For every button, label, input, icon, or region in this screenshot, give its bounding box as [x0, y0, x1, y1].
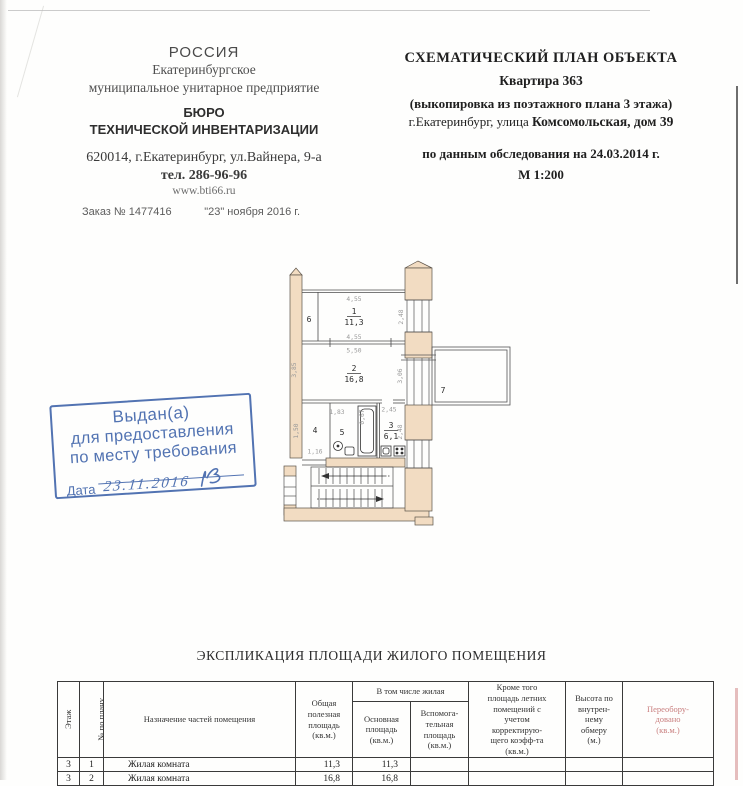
bottom-wall-step [415, 517, 433, 525]
apartment-line: Квартира 363 [376, 73, 706, 89]
cell-floor: 3 [58, 772, 80, 786]
title-block: СХЕМАТИЧЕСКИЙ ПЛАН ОБЪЕКТА Квартира 363 … [376, 50, 706, 183]
letterhead-bureau-line1: БЮРО [58, 105, 350, 122]
stair-wall-block [284, 466, 296, 476]
scan-right-line [736, 86, 738, 284]
order-number: Заказ № 1477416 [82, 206, 172, 218]
stamp-date-label: Дата [66, 482, 96, 499]
letterhead-org-line1: Екатеринбургское [58, 61, 350, 79]
dim-room5-top: 1,83 [329, 409, 344, 416]
scan-pink-line [735, 688, 738, 780]
letterhead-address: 620014, г.Екатеринбург, ул.Вайнера, 9-а [58, 150, 350, 166]
window-icon [405, 440, 432, 468]
cell-aux [411, 772, 469, 786]
cell-height [566, 758, 623, 772]
letterhead: РОССИЯ Екатеринбургское муниципальное ун… [58, 44, 350, 218]
staircase [311, 467, 393, 508]
scan-fold-mark [17, 6, 44, 98]
apartment-bottom-wall [326, 458, 405, 467]
dim-room2-right: 3,06 [397, 368, 404, 383]
stair-direction-arrow [317, 496, 384, 502]
cell-total: 11,3 [296, 758, 353, 772]
header-reequipped: Переобору- довано (кв.м.) [623, 682, 714, 758]
header-main-area: Основная площадь (кв.м.) [353, 702, 411, 758]
survey-line: по данным обследования на 24.03.2014 г. [376, 146, 706, 162]
header-summer-area: Кроме того площадь летних помещений с уч… [469, 682, 566, 758]
cell-no: 2 [80, 772, 104, 786]
stair-window-icon [284, 476, 296, 505]
table-row: 3 1 Жилая комната 11,3 11,3 [58, 758, 714, 772]
explication-table: Этаж № по плану Назначение частей помеще… [57, 681, 714, 786]
stair-direction-arrow [321, 473, 391, 479]
balcony-door-window-icon [401, 355, 436, 405]
header-aux-area: Вспомога- тельная площадь (кв.м.) [411, 702, 469, 758]
toilet-icon [345, 447, 354, 455]
room5-number: 5 [340, 428, 345, 437]
cell-main: 16,8 [353, 772, 411, 786]
order-date: "23" ноября 2016 г. [204, 206, 300, 218]
kitchen-sink-basin [383, 448, 389, 454]
floor-plan: 6 1 11,3 2 16,8 3 6,1 4 5 7 4,55 2,48 4,… [281, 259, 519, 527]
dim-room1-top: 4,55 [346, 296, 361, 303]
cell-purpose: Жилая комната [104, 758, 296, 772]
letterhead-website: www.bti66.ru [58, 185, 350, 197]
dim-room3-right: 2,48 [397, 424, 404, 439]
right-wall-block [405, 268, 432, 300]
dim-room1-right: 2,48 [398, 309, 405, 324]
header-purpose: Назначение частей помещения [104, 682, 296, 758]
extract-line: (выкопировка из поэтажного плана 3 этажа… [376, 96, 706, 112]
header-plan-no-text: № по плану [96, 698, 104, 741]
window-icon [405, 300, 432, 332]
order-row: Заказ № 1477416 "23" ноября 2016 г. [58, 206, 350, 218]
header-floor-text: Этаж [63, 710, 74, 729]
issued-stamp: Выдан(а) для предоставления по месту тре… [49, 393, 257, 499]
dim-room3-top: 2,45 [381, 407, 396, 414]
room3-number: 3 [389, 421, 394, 430]
right-wall-block [405, 332, 432, 358]
letterhead-country: РОССИЯ [58, 44, 350, 61]
address-line: г.Екатеринбург, улица Комсомольская, дом… [376, 114, 706, 130]
dim-room2-top: 5,50 [346, 348, 361, 355]
table-title: ЭКСПЛИКАЦИЯ ПЛОЩАДИ ЖИЛОГО ПОМЕЩЕНИЯ [0, 648, 743, 664]
right-wall-block [405, 405, 432, 440]
address-city: г.Екатеринбург, улица [409, 114, 532, 129]
room2-number: 2 [352, 364, 357, 373]
header-plan-no: № по плану [80, 682, 104, 758]
cell-no: 1 [80, 758, 104, 772]
room6-number: 6 [307, 315, 312, 324]
balcony [432, 347, 510, 405]
sink-drain [337, 445, 339, 447]
cell-floor: 3 [58, 758, 80, 772]
room1-area: 11,3 [344, 318, 363, 327]
dim-room4-bottom: 1,16 [307, 449, 322, 456]
cell-summer [469, 758, 566, 772]
cell-height [566, 772, 623, 786]
cell-total: 16,8 [296, 772, 353, 786]
wall-break-icon [405, 261, 432, 268]
room7-number: 7 [441, 386, 446, 395]
dim-room2-left: 3,85 [291, 362, 298, 377]
right-wall-block [405, 468, 432, 511]
cell-reequipped [623, 758, 714, 772]
page-title: СХЕМАТИЧЕСКИЙ ПЛАН ОБЪЕКТА [376, 50, 706, 67]
scale-line: М 1:200 [376, 167, 706, 183]
address-street: Комсомольская, дом 39 [532, 114, 673, 129]
header-total-area: Общая полезная площадь (кв.м.) [296, 682, 353, 758]
letterhead-bureau-line2: ТЕХНИЧЕСКОЙ ИНВЕНТАРИЗАЦИИ [58, 122, 350, 139]
document-page: { "letterhead": { "country": "РОССИЯ", "… [0, 0, 743, 780]
room1-number: 1 [352, 307, 357, 316]
header-floor: Этаж [58, 682, 80, 758]
header-height: Высота по внутрен- нему обмеру (м.) [566, 682, 623, 758]
table-row: 3 2 Жилая комната 16,8 16,8 [58, 772, 714, 786]
top-rule [8, 10, 650, 11]
room4-number: 4 [313, 426, 318, 435]
dim-room1-bottom: 4,55 [346, 334, 361, 341]
letterhead-org-line2: муниципальное унитарное предприятие [58, 79, 350, 97]
room2-area: 16,8 [344, 375, 363, 384]
letterhead-phone: тел. 286-96-96 [58, 168, 350, 184]
cell-summer [469, 772, 566, 786]
cell-reequipped [623, 772, 714, 786]
dim-room4-left: 1,50 [293, 423, 300, 438]
header-living-group: В том числе жилая [353, 682, 469, 702]
wall-break-icon [290, 268, 302, 275]
dim-bath-width: 0,67 [359, 409, 366, 424]
stove-icon [394, 446, 405, 456]
cell-purpose: Жилая комната [104, 772, 296, 786]
cell-aux [411, 758, 469, 772]
cell-main: 11,3 [353, 758, 411, 772]
